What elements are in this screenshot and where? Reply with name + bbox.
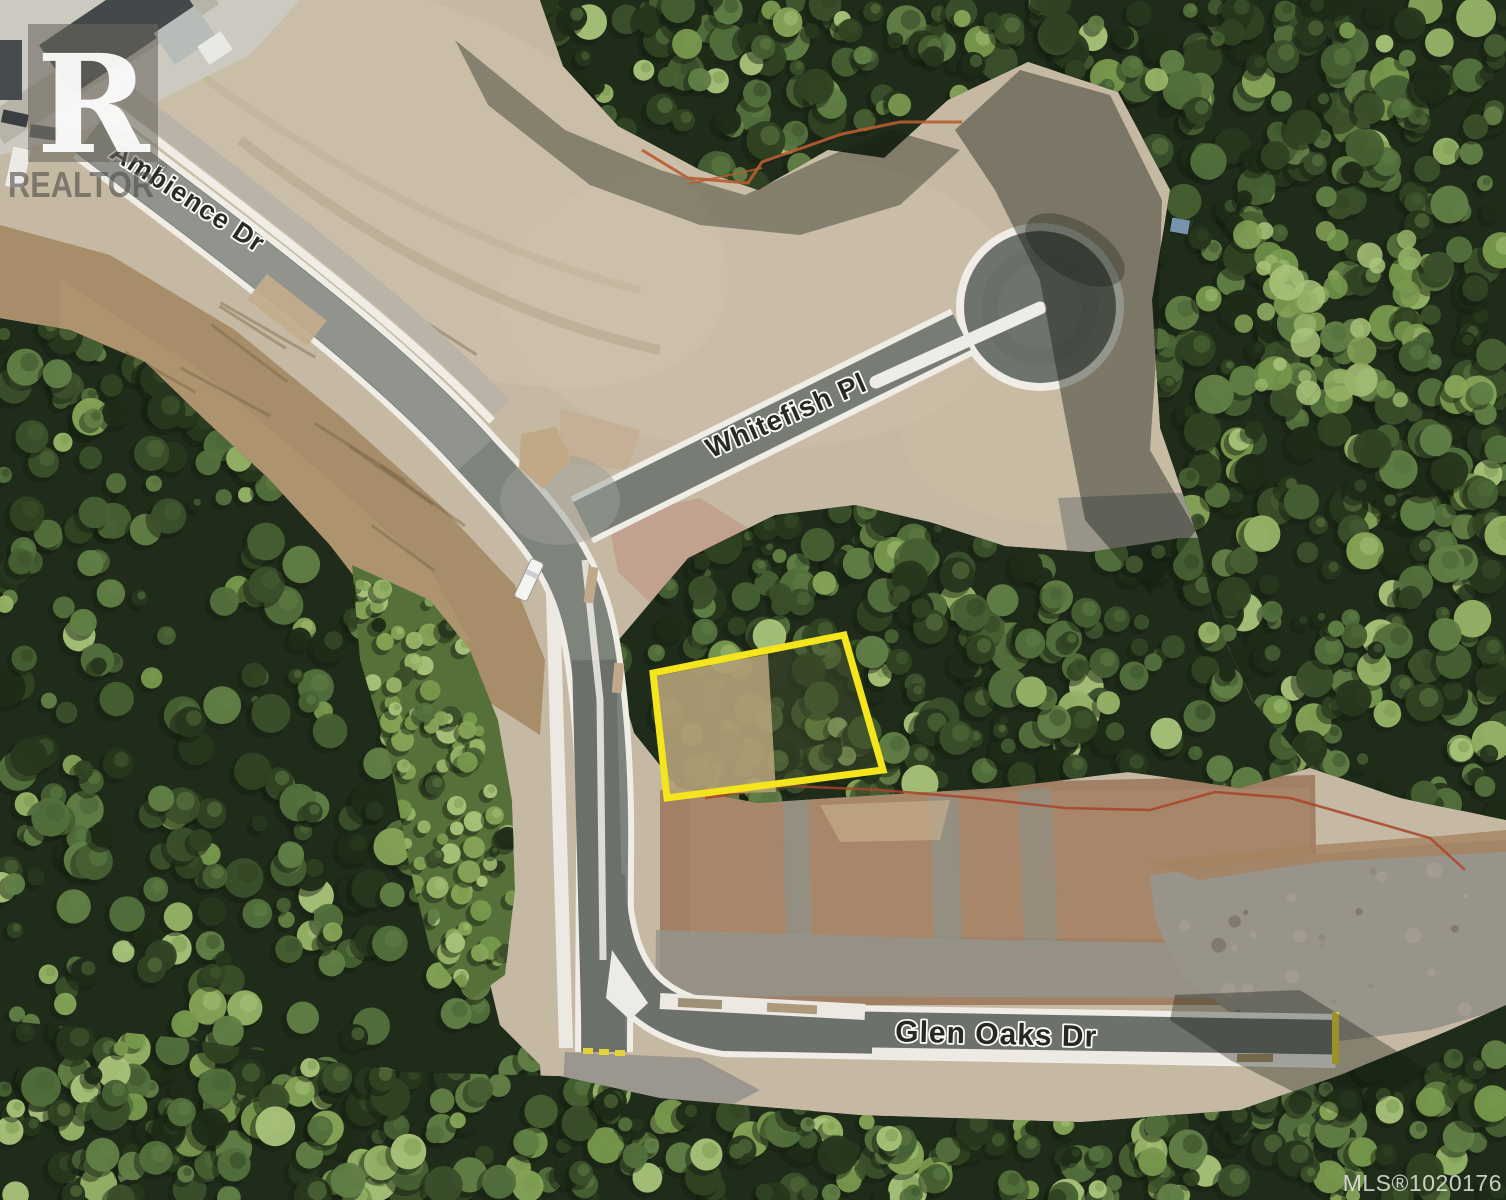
realtor-wordmark: REALTOR: [8, 164, 154, 205]
registered-trademark-icon: ®: [156, 159, 167, 176]
aerial-map: Ambience Dr Whitefish Pl Glen Oaks Dr R …: [0, 0, 1506, 1200]
listing-aerial-photo: Ambience Dr Whitefish Pl Glen Oaks Dr R …: [0, 0, 1506, 1200]
realtor-logo-r: R: [36, 25, 150, 185]
lot-interior-cleared: [656, 654, 776, 795]
realtor-watermark: R REALTOR ®: [8, 24, 167, 205]
mls-number: MLS®1020176: [1343, 1170, 1502, 1196]
street-label-glen-oaks-dr: Glen Oaks Dr: [895, 1015, 1098, 1053]
